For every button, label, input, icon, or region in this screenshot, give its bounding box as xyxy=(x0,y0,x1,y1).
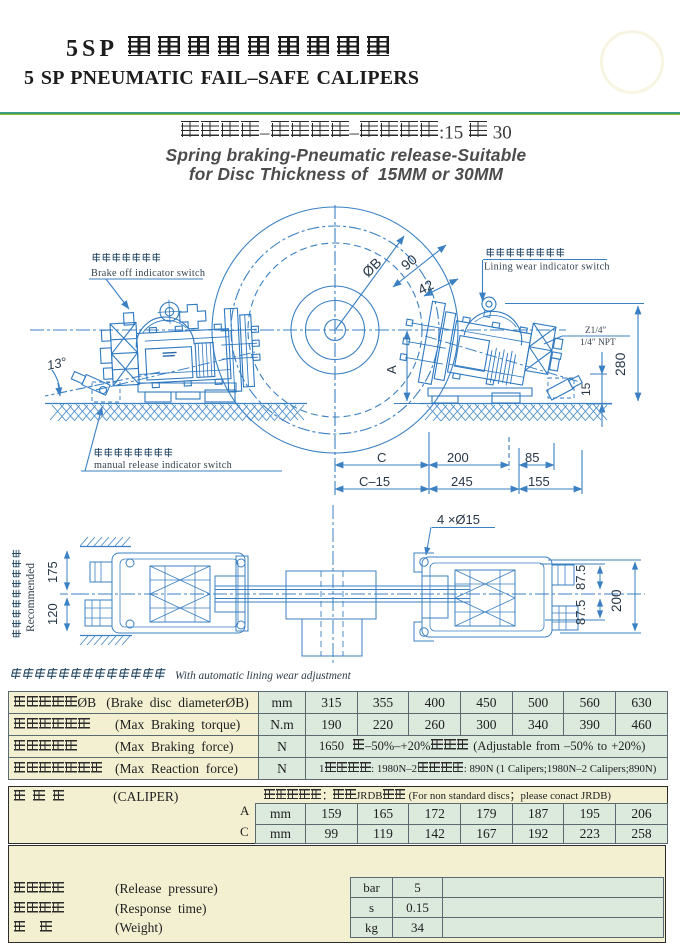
svg-text:90: 90 xyxy=(398,251,420,273)
svg-text:manual release indicator sw: manual release indicator switch xyxy=(94,460,232,471)
svg-text:245: 245 xyxy=(451,474,473,489)
svg-text:155: 155 xyxy=(528,474,550,489)
svg-text:C: C xyxy=(377,450,386,465)
svg-text:175: 175 xyxy=(45,561,60,583)
svg-text:120: 120 xyxy=(45,603,60,625)
svg-text:1/4″ NPT: 1/4″ NPT xyxy=(580,338,616,348)
svg-text:4 ×Ø15: 4 ×Ø15 xyxy=(437,512,480,527)
svg-text:Lining wear indicator switc: Lining wear indicator switch xyxy=(484,262,610,273)
svg-text:200: 200 xyxy=(609,589,624,612)
svg-text:87.5: 87.5 xyxy=(573,565,588,590)
svg-text:C–15: C–15 xyxy=(359,474,390,489)
svg-text:85: 85 xyxy=(525,450,539,465)
svg-text:Brake off indicator switch: Brake off indicator switch xyxy=(91,268,205,279)
svg-text:15: 15 xyxy=(579,382,593,396)
svg-text:13°: 13° xyxy=(46,354,68,373)
svg-text:Z1/4″: Z1/4″ xyxy=(585,326,607,336)
svg-text:Recommended: Recommended xyxy=(25,563,37,632)
svg-text:200: 200 xyxy=(447,450,469,465)
svg-text:87.5: 87.5 xyxy=(573,600,588,625)
svg-text:A: A xyxy=(384,365,399,374)
svg-text:280: 280 xyxy=(612,352,628,376)
svg-text:ØB: ØB xyxy=(359,254,385,280)
svg-text:With automatic lining wear: With automatic lining wear adjustment xyxy=(175,670,352,682)
